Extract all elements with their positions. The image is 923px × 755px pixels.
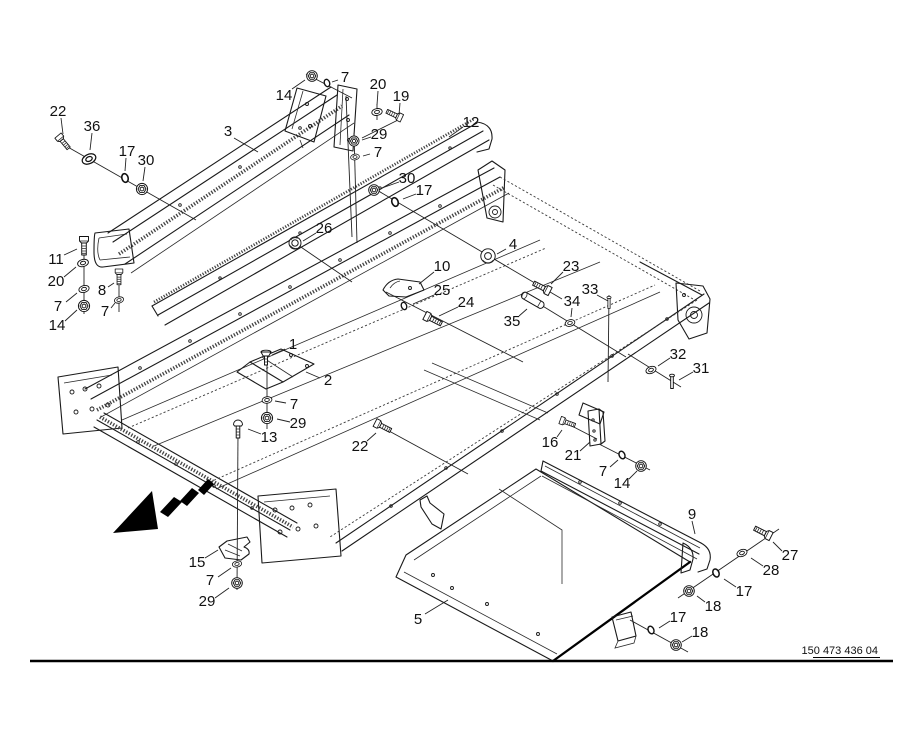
callout-label-27: 27 xyxy=(782,547,799,564)
callout-label-7: 7 xyxy=(599,463,607,480)
callout-label-17: 17 xyxy=(119,143,136,160)
leader-line xyxy=(234,138,258,152)
leader-line xyxy=(419,272,434,284)
leader-line xyxy=(773,542,782,551)
washer-icon xyxy=(81,152,98,167)
flange-nut-icon xyxy=(671,640,682,651)
bushing-icon xyxy=(481,249,495,263)
washer-icon xyxy=(736,548,748,558)
washer-icon xyxy=(114,296,125,304)
washer-icon xyxy=(232,560,242,568)
leader-line xyxy=(275,401,286,403)
callout-label-22: 22 xyxy=(352,438,369,455)
washer-icon xyxy=(371,108,382,117)
callout-label-3: 3 xyxy=(224,123,232,140)
assembly-line xyxy=(378,425,468,474)
washer-icon xyxy=(77,258,89,268)
leader-line xyxy=(205,550,218,558)
leader-line xyxy=(363,154,370,156)
leader-line xyxy=(724,579,736,587)
callout-label-17: 17 xyxy=(670,609,687,626)
callout-label-29: 29 xyxy=(371,126,388,143)
leader-line xyxy=(403,194,416,199)
callout-label-23: 23 xyxy=(563,258,580,275)
exploded-parts-diagram: 150 473 436 04 2236173031472019297123017… xyxy=(0,0,923,755)
leader-line xyxy=(580,442,590,451)
callout-label-20: 20 xyxy=(370,76,387,93)
callout-label-17: 17 xyxy=(736,583,753,600)
callout-label-5: 5 xyxy=(414,611,422,628)
leader-line xyxy=(248,429,261,434)
leader-line xyxy=(377,91,378,105)
callout-label-7: 7 xyxy=(290,396,298,413)
callout-label-28: 28 xyxy=(763,562,780,579)
leader-line xyxy=(111,303,115,308)
callout-label-8: 8 xyxy=(98,282,106,299)
flange-nut-icon xyxy=(232,578,243,589)
callout-label-36: 36 xyxy=(84,118,101,135)
callout-label-10: 10 xyxy=(434,258,451,275)
callout-label-2: 2 xyxy=(324,372,332,389)
bolt-icon xyxy=(80,237,89,256)
callout-label-14: 14 xyxy=(614,475,631,492)
bolt-icon xyxy=(55,133,72,151)
leader-line xyxy=(425,600,448,614)
bolt-icon xyxy=(385,108,404,122)
clamp-part-15 xyxy=(219,537,250,560)
callout-label-25: 25 xyxy=(434,282,451,299)
callout-label-7: 7 xyxy=(101,303,109,320)
washer-icon xyxy=(350,153,360,160)
callout-label-14: 14 xyxy=(49,317,66,334)
diagram-canvas: 150 473 436 04 2236173031472019297123017… xyxy=(0,0,923,755)
leader-line xyxy=(610,460,618,467)
bolt-icon xyxy=(559,416,576,429)
flange-nut-icon xyxy=(684,586,695,597)
callout-label-18: 18 xyxy=(692,624,709,641)
title-block: 150 473 436 04 xyxy=(30,645,893,661)
callout-label-11: 11 xyxy=(48,251,64,268)
leader-line xyxy=(66,293,77,302)
flange-bolt-icon xyxy=(289,237,301,249)
bolt-top-icon xyxy=(234,420,243,438)
callout-label-31: 31 xyxy=(693,360,710,377)
leader-line xyxy=(108,283,114,287)
callout-label-32: 32 xyxy=(670,346,687,363)
leader-line xyxy=(64,249,77,255)
leader-line xyxy=(497,249,506,254)
leader-line xyxy=(659,621,670,628)
flange-nut-icon xyxy=(78,300,89,311)
ring-icon xyxy=(618,450,626,460)
callout-label-14: 14 xyxy=(276,87,293,104)
leader-line xyxy=(218,568,231,577)
flange-nut-icon xyxy=(636,461,647,472)
leader-line xyxy=(439,307,458,316)
callout-label-33: 33 xyxy=(582,281,599,298)
callout-label-35: 35 xyxy=(504,313,521,330)
rail-part-3 xyxy=(94,87,354,273)
leader-line xyxy=(751,558,763,566)
bolt-icon xyxy=(115,269,123,285)
callout-label-9: 9 xyxy=(688,506,696,523)
chassis-frame xyxy=(58,161,710,563)
callout-label-22: 22 xyxy=(50,103,67,120)
callout-label-1: 1 xyxy=(289,336,297,353)
washer-icon xyxy=(645,365,657,375)
small-pin-icon xyxy=(607,296,611,308)
callout-label-19: 19 xyxy=(393,88,410,105)
ring-icon xyxy=(323,79,331,88)
flange-nut-icon xyxy=(349,136,359,146)
callout-label-21: 21 xyxy=(565,447,582,464)
callout-label-17: 17 xyxy=(416,182,433,199)
bolt-icon xyxy=(373,419,393,435)
ring-icon xyxy=(121,173,129,183)
drawing-number: 150 473 436 04 xyxy=(802,645,878,657)
leader-line xyxy=(65,310,77,321)
ring-icon xyxy=(391,197,400,207)
callout-label-24: 24 xyxy=(458,294,475,311)
leader-line xyxy=(682,636,692,642)
ring-icon xyxy=(647,625,655,635)
callout-label-4: 4 xyxy=(509,236,517,253)
callout-labels: 2236173031472019297123017264102325243334… xyxy=(48,69,799,641)
leader-line xyxy=(413,295,434,304)
plate-part-2 xyxy=(237,349,314,389)
leader-line xyxy=(64,267,76,277)
callout-label-7: 7 xyxy=(54,298,62,315)
callout-label-30: 30 xyxy=(399,170,416,187)
callout-label-15: 15 xyxy=(189,554,206,571)
callout-label-7: 7 xyxy=(341,69,349,86)
callout-label-16: 16 xyxy=(542,434,559,451)
leader-line xyxy=(277,419,290,422)
bolt-icon xyxy=(753,524,774,540)
flange-nut-icon xyxy=(261,412,272,423)
callout-label-26: 26 xyxy=(316,220,333,237)
callout-label-18: 18 xyxy=(705,598,722,615)
leader-line xyxy=(292,80,305,89)
callout-label-29: 29 xyxy=(290,415,307,432)
leader-line xyxy=(215,588,229,598)
flange-nut-icon xyxy=(307,71,318,82)
callout-label-34: 34 xyxy=(564,293,581,310)
assembly-line xyxy=(346,96,352,237)
callout-label-29: 29 xyxy=(199,593,216,610)
leader-line xyxy=(306,372,320,378)
leader-line xyxy=(597,295,608,301)
callout-label-30: 30 xyxy=(138,152,155,169)
washer-icon xyxy=(78,284,90,293)
leader-line xyxy=(143,167,145,181)
plate-part-21 xyxy=(588,409,605,446)
callout-label-20: 20 xyxy=(48,273,65,290)
callout-label-12: 12 xyxy=(463,114,480,131)
leader-line xyxy=(61,118,63,134)
assembly-lines xyxy=(66,74,779,652)
callout-label-7: 7 xyxy=(374,144,382,161)
callout-label-7: 7 xyxy=(206,572,214,589)
leader-line xyxy=(658,358,670,366)
pin-icon xyxy=(520,291,545,310)
small-pin-icon xyxy=(670,374,675,388)
callout-label-13: 13 xyxy=(261,429,278,446)
leader-line xyxy=(90,133,92,150)
flange-nut-icon xyxy=(136,183,147,194)
flange-nut-icon xyxy=(369,185,380,196)
washer-icon xyxy=(262,396,273,404)
leader-line xyxy=(332,80,338,82)
leader-line xyxy=(679,372,693,380)
leader-line xyxy=(367,433,376,441)
bolt-icon xyxy=(532,279,553,295)
